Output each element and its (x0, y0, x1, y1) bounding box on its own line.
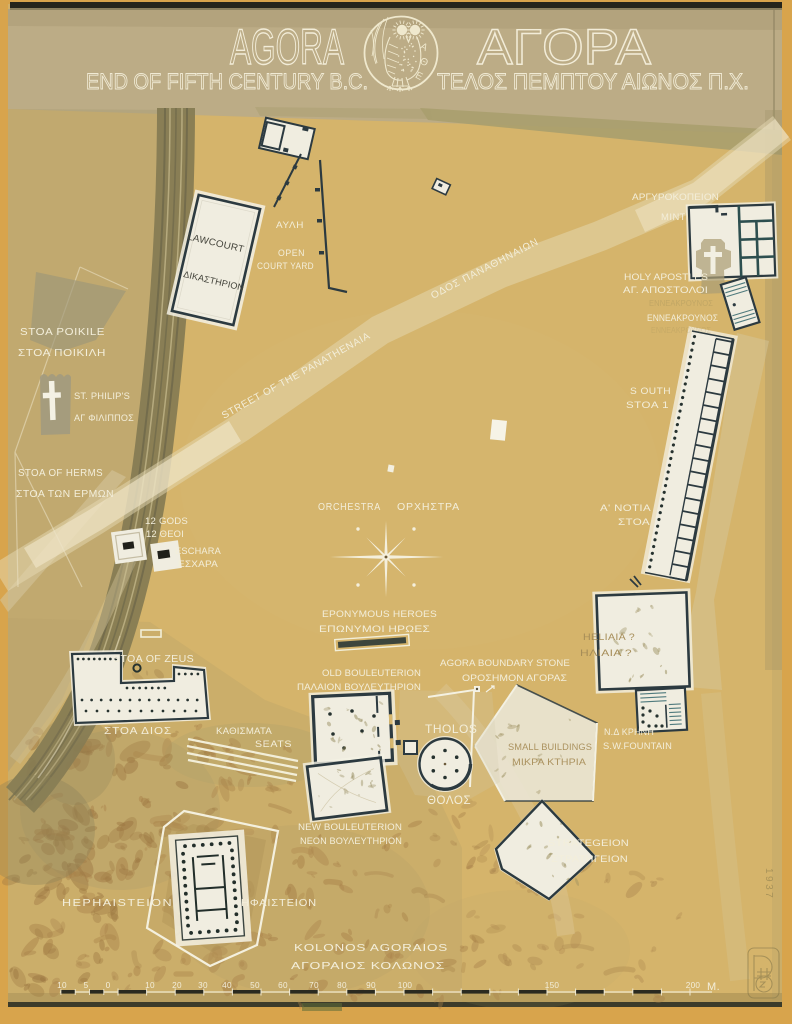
svg-text:ΗΦΑΙΣΤΕΙΟΝ: ΗΦΑΙΣΤΕΙΟΝ (241, 897, 317, 909)
svg-text:40: 40 (222, 981, 232, 990)
svg-text:M.: M. (707, 981, 720, 993)
svg-text:AGORA BOUNDARY STONE: AGORA BOUNDARY STONE (440, 658, 570, 668)
svg-text:ΣΤΟΑ ΤΩΝ ΕΡΜΩΝ: ΣΤΟΑ ΤΩΝ ΕΡΜΩΝ (16, 489, 114, 500)
svg-text:STOA OF HERMS: STOA OF HERMS (18, 468, 103, 479)
svg-text:10: 10 (145, 981, 155, 990)
svg-text:12 GODS: 12 GODS (145, 516, 188, 526)
svg-text:ΗΛΙΑΙΑ ?: ΗΛΙΑΙΑ ? (580, 648, 632, 659)
svg-text:ΑΓ ΦΙΛΙΠΠΟΣ: ΑΓ ΦΙΛΙΠΠΟΣ (74, 413, 134, 423)
svg-text:COURT YARD: COURT YARD (257, 261, 314, 272)
svg-text:ΟΡΟΣΗΜΟΝ ΑΓΟΡΑΣ: ΟΡΟΣΗΜΟΝ ΑΓΟΡΑΣ (462, 673, 567, 683)
svg-text:KOLONOS AGORAIOS: KOLONOS AGORAIOS (294, 942, 448, 954)
svg-text:OPEN: OPEN (278, 248, 305, 259)
svg-text:5: 5 (84, 981, 89, 990)
svg-text:ESCHARA: ESCHARA (175, 546, 221, 556)
svg-text:ST. PHILIP'S: ST. PHILIP'S (74, 391, 130, 401)
svg-text:ORCHESTRA: ORCHESTRA (318, 502, 381, 513)
svg-text:ΣΤΟΑ ΠΟΙΚΙΛΗ: ΣΤΟΑ ΠΟΙΚΙΛΗ (18, 348, 106, 359)
svg-text:100: 100 (398, 981, 413, 990)
svg-text:ΚΑΘΙΣΜΑΤΑ: ΚΑΘΙΣΜΑΤΑ (216, 726, 272, 736)
svg-text:ΣΤΡΑΤΗΓΕΙΟΝ: ΣΤΡΑΤΗΓΕΙΟΝ (551, 854, 628, 864)
svg-text:STOA 1: STOA 1 (626, 400, 669, 411)
svg-text:90: 90 (366, 981, 376, 990)
svg-text:ΑΓ. ΑΠΟΣΤΟΛΟΙ: ΑΓ. ΑΠΟΣΤΟΛΟΙ (623, 285, 708, 295)
svg-text:30: 30 (198, 981, 208, 990)
svg-text:STOA POIKILE: STOA POIKILE (20, 327, 105, 338)
svg-text:50: 50 (250, 981, 260, 990)
svg-text:ΣΤΟΑ: ΣΤΟΑ (618, 517, 650, 528)
svg-text:ΕΠΩΝΥΜΟΙ ΗΡΩΕΣ: ΕΠΩΝΥΜΟΙ ΗΡΩΕΣ (319, 624, 430, 635)
svg-text:HELIAIA ?: HELIAIA ? (583, 632, 635, 643)
svg-text:ΣΤΟΑ ΔΙΟΣ: ΣΤΟΑ ΔΙΟΣ (104, 725, 172, 737)
svg-text:Ν.Δ ΚΡΗΝΗ: Ν.Δ ΚΡΗΝΗ (604, 727, 654, 737)
svg-text:AGORA: AGORA (230, 19, 344, 75)
svg-text:ΤΕΛΟΣ ΠΕΜΠΤΟΥ ΑΙΩΝΟΣ Π.Χ.: ΤΕΛΟΣ ΠΕΜΠΤΟΥ ΑΙΩΝΟΣ Π.Χ. (437, 69, 749, 94)
svg-text:SMALL BUILDINGS: SMALL BUILDINGS (508, 742, 592, 752)
svg-text:HOLY APOSTLES: HOLY APOSTLES (624, 272, 708, 282)
svg-text:150: 150 (545, 981, 560, 990)
svg-text:STOA OF ZEUS: STOA OF ZEUS (113, 654, 194, 665)
svg-text:80: 80 (337, 981, 347, 990)
svg-text:NEW BOULEUTERION: NEW BOULEUTERION (298, 822, 402, 833)
svg-text:1937: 1937 (763, 868, 774, 900)
svg-text:S OUTH: S OUTH (630, 386, 671, 397)
svg-text:ΕΝΝΕΑΚΡΟΥΝΟΣ: ΕΝΝΕΑΚΡΟΥΝΟΣ (651, 326, 711, 335)
svg-text:10: 10 (57, 981, 67, 990)
svg-text:EPONYMOUS HEROES: EPONYMOUS HEROES (322, 609, 437, 620)
svg-text:MINT: MINT (661, 212, 686, 223)
svg-text:ΑΥΛΗ: ΑΥΛΗ (276, 220, 304, 231)
svg-text:ΝΕΟΝ ΒΟΥΛΕΥΤΗΡΙΟΝ: ΝΕΟΝ ΒΟΥΛΕΥΤΗΡΙΟΝ (300, 836, 402, 847)
svg-text:ΑΓΟΡΑ: ΑΓΟΡΑ (477, 19, 652, 75)
svg-text:ΑΓΟΡΑΙΟΣ ΚΟΛΩΝΟΣ: ΑΓΟΡΑΙΟΣ ΚΟΛΩΝΟΣ (291, 960, 445, 972)
svg-text:OLD BOULEUTERION: OLD BOULEUTERION (322, 668, 421, 679)
svg-text:STRATEGEION: STRATEGEION (548, 838, 629, 848)
svg-text:ΕΝΝΕΑΚΡΟΥΝΟΣ: ΕΝΝΕΑΚΡΟΥΝΟΣ (649, 299, 713, 308)
svg-text:ΕΝΝΕΑΚΡΟΥΝΟΣ: ΕΝΝΕΑΚΡΟΥΝΟΣ (647, 313, 718, 323)
svg-text:ΘΟΛΟΣ: ΘΟΛΟΣ (427, 795, 471, 807)
svg-text:20: 20 (172, 981, 182, 990)
svg-text:70: 70 (309, 981, 319, 990)
svg-text:60: 60 (278, 981, 288, 990)
svg-text:ΑΡΓΥΡΟΚΟΠΕΙΟΝ: ΑΡΓΥΡΟΚΟΠΕΙΟΝ (632, 192, 719, 202)
svg-text:END OF FIFTH CENTURY B.C.: END OF FIFTH CENTURY B.C. (86, 69, 368, 94)
svg-text:ΠΑΛΑΙΟΝ ΒΟΥΛΕΥΤΗΡΙΟΝ: ΠΑΛΑΙΟΝ ΒΟΥΛΕΥΤΗΡΙΟΝ (297, 682, 421, 693)
svg-text:ΜΙΚΡΑ ΚΤΗΡΙΑ: ΜΙΚΡΑ ΚΤΗΡΙΑ (512, 757, 586, 767)
svg-text:Α' ΝΟΤΙΑ: Α' ΝΟΤΙΑ (600, 503, 651, 514)
svg-text:0: 0 (106, 981, 111, 990)
svg-text:S.W.FOUNTAIN: S.W.FOUNTAIN (603, 741, 672, 751)
svg-text:12 ΘΕΟΙ: 12 ΘΕΟΙ (146, 529, 184, 539)
svg-text:ΕΣΧΑΡΑ: ΕΣΧΑΡΑ (178, 559, 218, 569)
svg-text:200: 200 (686, 981, 701, 990)
svg-text:HEPHAISTEION: HEPHAISTEION (62, 897, 173, 909)
svg-text:SEATS: SEATS (255, 739, 292, 749)
svg-text:ΟΡΧΗΣΤΡΑ: ΟΡΧΗΣΤΡΑ (397, 502, 460, 513)
svg-text:THOLOS: THOLOS (425, 722, 477, 736)
